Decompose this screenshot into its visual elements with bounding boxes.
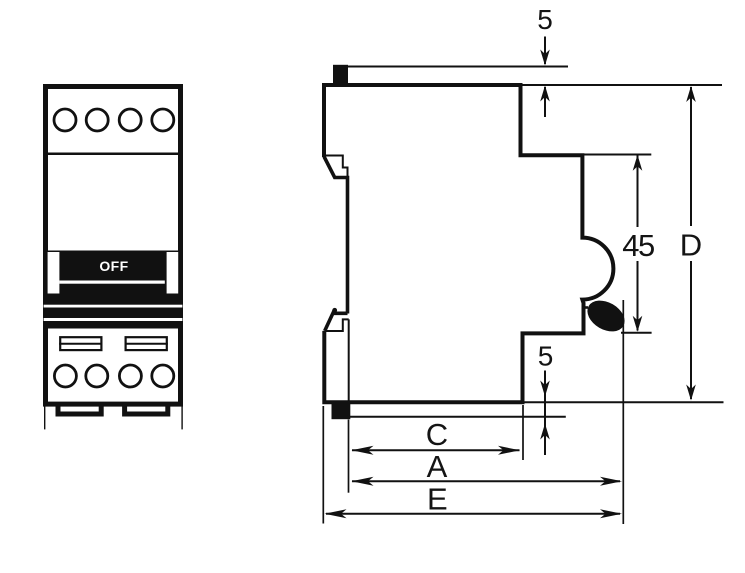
svg-text:45: 45 — [622, 228, 654, 263]
svg-text:5: 5 — [537, 4, 553, 35]
svg-text:A: A — [427, 449, 448, 484]
svg-text:E: E — [427, 482, 448, 517]
svg-text:OFF: OFF — [99, 258, 128, 274]
svg-text:5: 5 — [538, 341, 554, 372]
svg-text:D: D — [680, 228, 702, 263]
svg-text:C: C — [426, 417, 448, 452]
